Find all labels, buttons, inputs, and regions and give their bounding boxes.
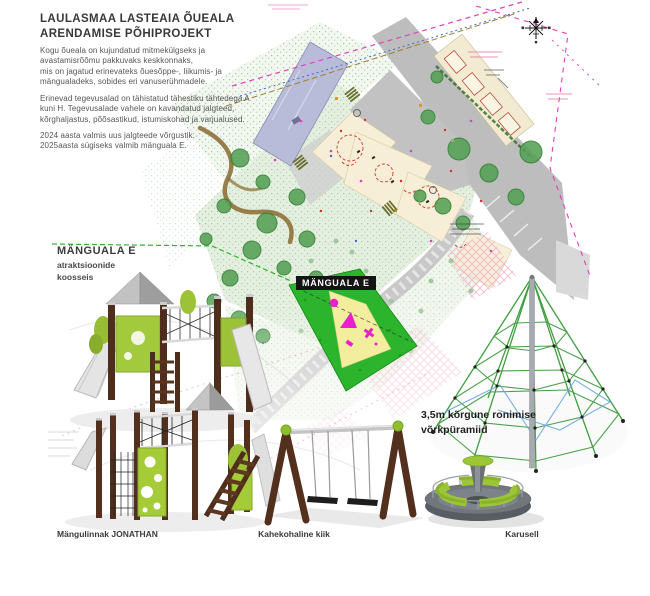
- pyramid-caption: 3,5m kõrgune ronimise võrkpüramiid: [421, 408, 536, 438]
- intro-paragraph: Kogu õueala on kujundatud mitmekülgseks …: [40, 46, 255, 87]
- poster-graphics: [0, 0, 650, 596]
- timeline-paragraph: 2024 aasta valmis uus jalgteede võrgusti…: [40, 131, 255, 152]
- zones-paragraph: Erinevad tegevusalad on tähistatud tähes…: [40, 94, 255, 125]
- page-title: LAULASMAA LASTEAIA ÕUEALA ARENDAMISE PÕH…: [40, 12, 234, 42]
- side-net: [110, 452, 136, 516]
- play-area-e-title: MÄNGUALA E: [57, 245, 136, 257]
- caption-carousel: Karusell: [486, 529, 558, 539]
- play-area-e-subtitle: atraktsioonide koosseis: [57, 260, 115, 283]
- play-castle-render: [65, 272, 280, 532]
- caption-play-castle: Mängulinnak JONATHAN: [40, 529, 175, 539]
- caption-swing: Kahekohaline kiik: [244, 529, 344, 539]
- map-area-label: MÄNGUALA E: [296, 276, 376, 290]
